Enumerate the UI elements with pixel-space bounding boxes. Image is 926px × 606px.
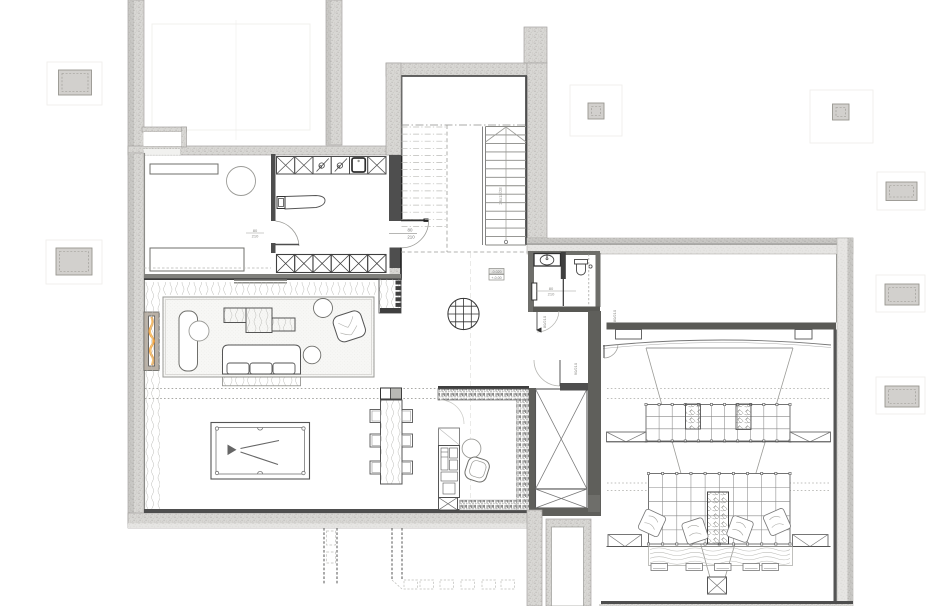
svg-text:26x18/28: 26x18/28: [498, 187, 503, 205]
svg-text:-0.020: -0.020: [491, 270, 501, 274]
svg-text:80/210: 80/210: [542, 315, 547, 328]
svg-text:210: 210: [252, 234, 259, 239]
svg-text:80/210: 80/210: [612, 309, 617, 322]
svg-text:80: 80: [549, 286, 554, 291]
svg-text:90/210: 90/210: [573, 362, 578, 375]
svg-text:210: 210: [548, 292, 555, 297]
svg-text:80: 80: [253, 228, 258, 233]
svg-text:210: 210: [407, 235, 415, 240]
svg-text:80: 80: [408, 228, 413, 233]
svg-text:+-0.00: +-0.00: [491, 276, 501, 280]
